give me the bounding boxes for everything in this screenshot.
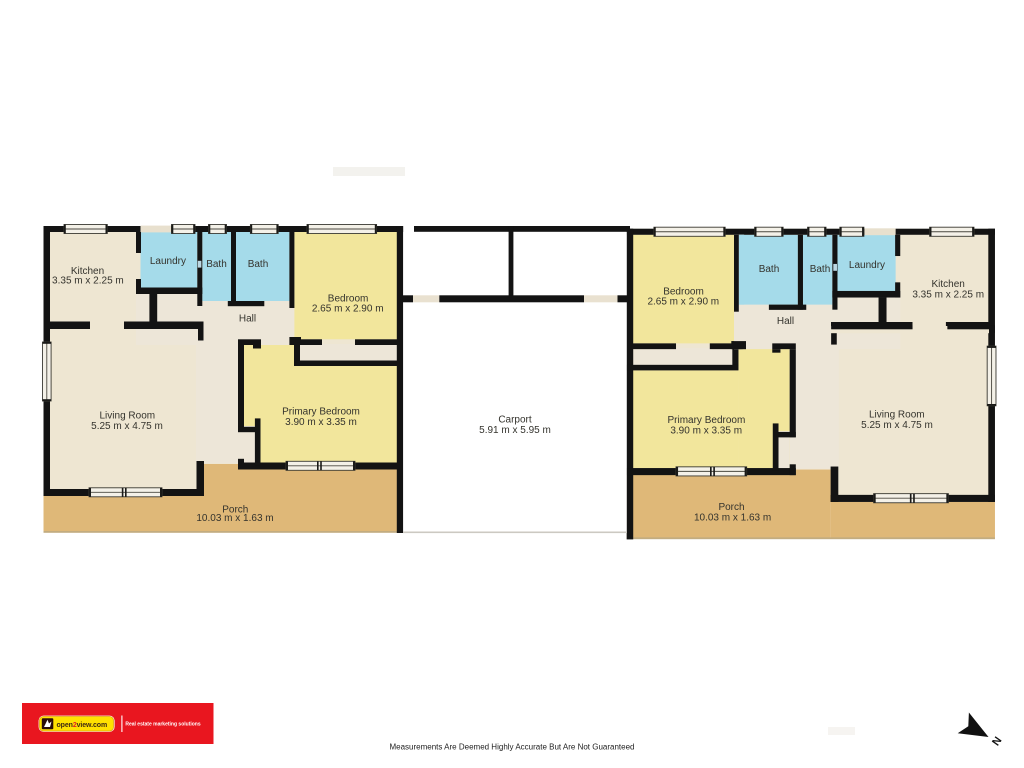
svg-text:5.91 m x 5.95 m: 5.91 m x 5.95 m — [479, 425, 551, 436]
svg-text:3.90 m x 3.35 m: 3.90 m x 3.35 m — [285, 417, 357, 428]
svg-text:10.03 m x 1.63 m: 10.03 m x 1.63 m — [694, 513, 771, 524]
svg-text:Primary Bedroom: Primary Bedroom — [667, 415, 745, 426]
svg-text:Hall: Hall — [239, 314, 256, 325]
svg-text:Living Room: Living Room — [100, 411, 156, 422]
svg-text:3.90 m x 3.35 m: 3.90 m x 3.35 m — [670, 425, 742, 436]
svg-text:Real estate marketing solution: Real estate marketing solutions — [125, 721, 201, 727]
svg-text:Primary Bedroom: Primary Bedroom — [282, 407, 360, 418]
svg-text:3.35 m x 2.25 m: 3.35 m x 2.25 m — [52, 275, 124, 286]
svg-text:3.35 m x 2.25 m: 3.35 m x 2.25 m — [912, 289, 984, 300]
svg-text:Living Room: Living Room — [869, 410, 925, 421]
svg-text:Measurements Are Deemed Highly: Measurements Are Deemed Highly Accurate … — [389, 743, 634, 752]
svg-text:open2view.com: open2view.com — [57, 722, 108, 729]
svg-text:Bath: Bath — [248, 259, 269, 270]
svg-text:Porch: Porch — [718, 502, 744, 513]
svg-text:2.65 m x 2.90 m: 2.65 m x 2.90 m — [647, 297, 719, 308]
svg-text:10.03 m x 1.63 m: 10.03 m x 1.63 m — [196, 513, 273, 524]
svg-text:Hall: Hall — [777, 316, 794, 327]
svg-text:Laundry: Laundry — [849, 260, 885, 271]
svg-text:Bath: Bath — [810, 264, 831, 275]
svg-text:2.65 m x 2.90 m: 2.65 m x 2.90 m — [312, 304, 384, 315]
svg-text:Carport: Carport — [498, 415, 532, 426]
svg-text:Bath: Bath — [759, 264, 780, 275]
svg-text:Bath: Bath — [206, 259, 227, 270]
svg-text:5.25 m x 4.75 m: 5.25 m x 4.75 m — [861, 420, 933, 431]
svg-text:5.25 m x 4.75 m: 5.25 m x 4.75 m — [91, 421, 163, 432]
svg-text:Laundry: Laundry — [150, 256, 186, 267]
